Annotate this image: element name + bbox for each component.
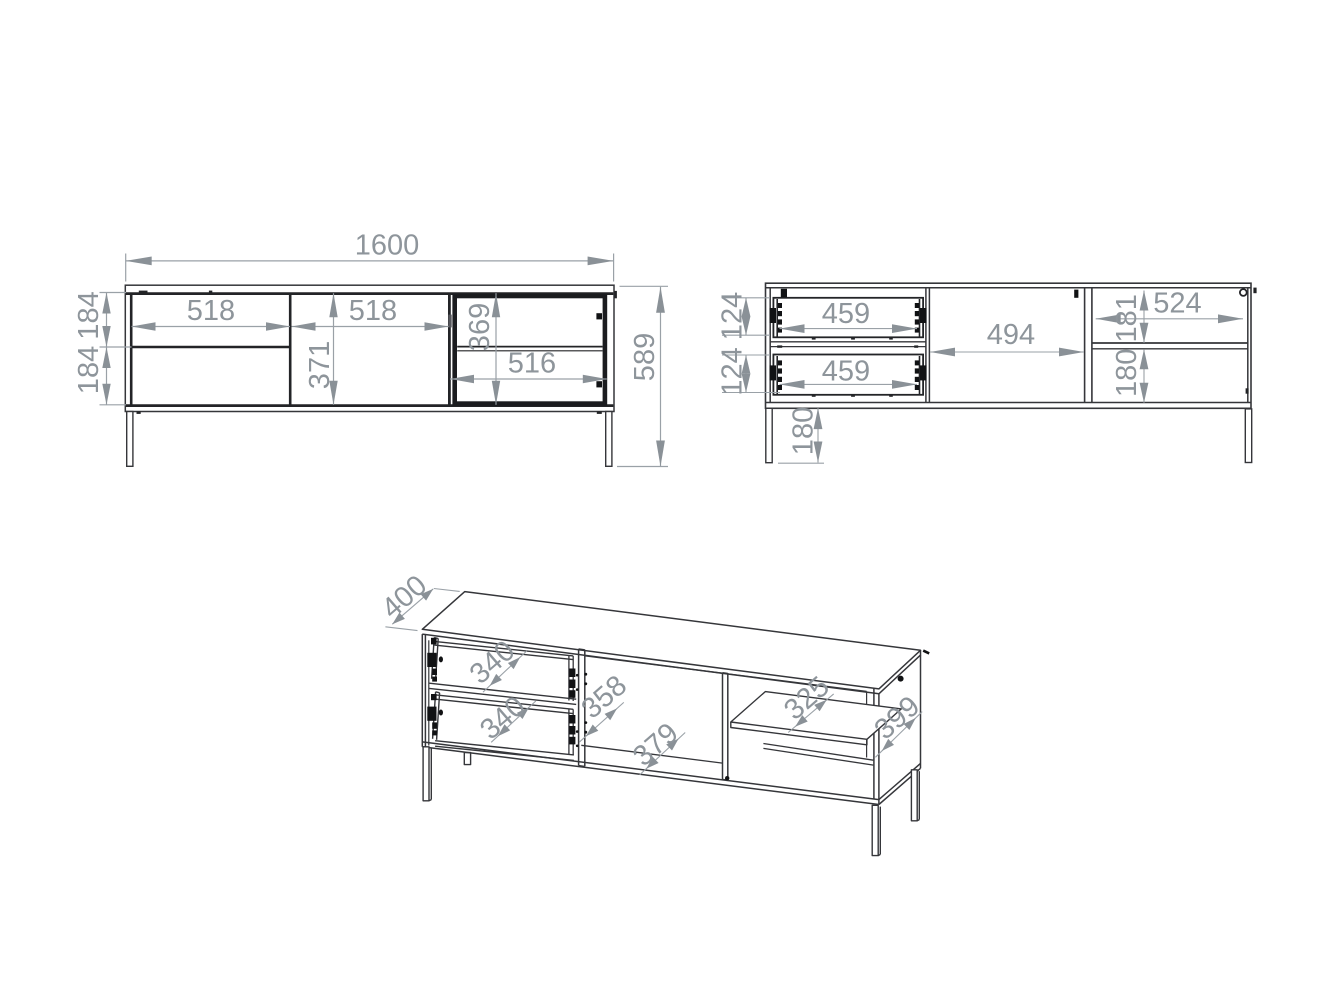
svg-text:589: 589 xyxy=(629,333,661,381)
svg-text:516: 516 xyxy=(508,348,556,380)
svg-text:184: 184 xyxy=(73,291,105,339)
svg-text:494: 494 xyxy=(987,319,1035,351)
svg-text:340: 340 xyxy=(464,635,522,691)
svg-text:459: 459 xyxy=(822,298,870,330)
svg-text:518: 518 xyxy=(349,295,397,327)
svg-text:371: 371 xyxy=(304,341,336,389)
svg-text:518: 518 xyxy=(187,295,235,327)
svg-text:180: 180 xyxy=(1111,349,1143,397)
svg-text:180: 180 xyxy=(788,407,820,455)
svg-text:369: 369 xyxy=(464,303,496,351)
svg-text:400: 400 xyxy=(376,569,434,625)
svg-text:181: 181 xyxy=(1111,294,1143,342)
svg-text:459: 459 xyxy=(822,356,870,388)
svg-text:184: 184 xyxy=(73,346,105,394)
svg-text:524: 524 xyxy=(1153,288,1201,320)
svg-text:124: 124 xyxy=(717,347,749,395)
svg-text:1600: 1600 xyxy=(355,230,420,262)
svg-text:379: 379 xyxy=(627,717,685,773)
svg-text:124: 124 xyxy=(717,292,749,340)
svg-text:399: 399 xyxy=(869,690,927,746)
